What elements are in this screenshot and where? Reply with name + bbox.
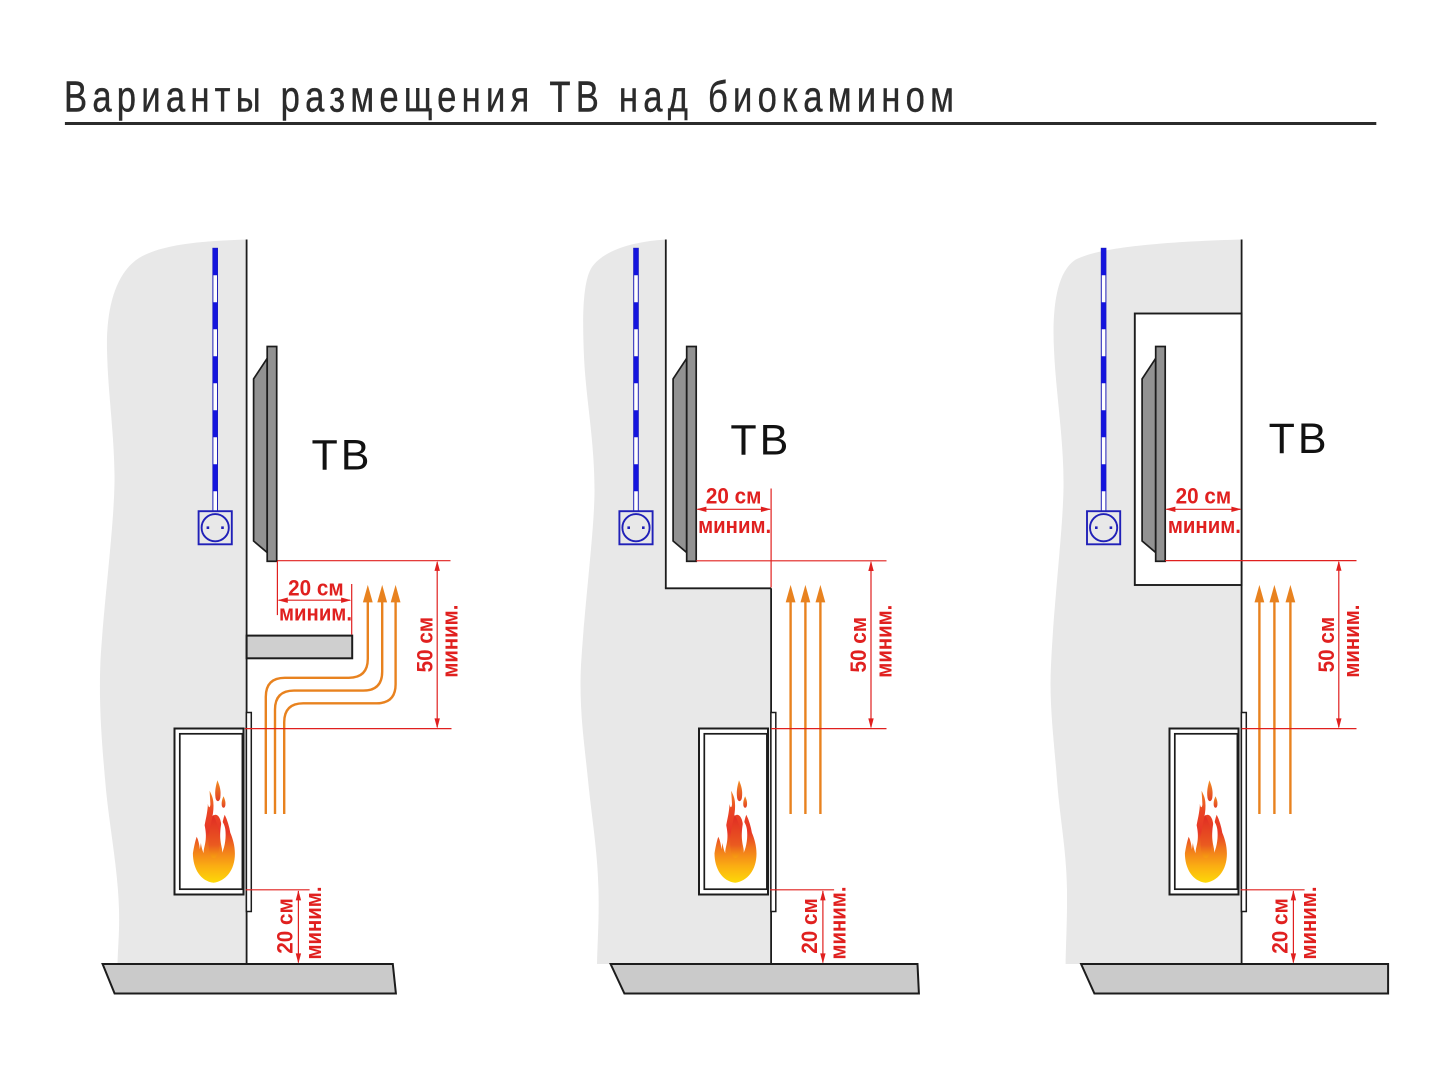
svg-text:20 см: 20 см — [288, 575, 344, 600]
svg-text:ТВ: ТВ — [1269, 415, 1330, 463]
svg-text:миним.: миним. — [825, 887, 850, 960]
svg-text:миним.: миним. — [698, 513, 771, 538]
svg-text:миним.: миним. — [1296, 887, 1321, 960]
svg-text:50 см: 50 см — [846, 617, 871, 673]
svg-text:50 см: 50 см — [1314, 617, 1339, 673]
svg-text:20 см: 20 см — [706, 483, 762, 508]
svg-text:20 см: 20 см — [1176, 483, 1232, 508]
svg-text:миним.: миним. — [438, 605, 463, 678]
svg-text:миним.: миним. — [1339, 605, 1364, 678]
svg-text:50 см: 50 см — [412, 617, 437, 673]
svg-text:миним.: миним. — [871, 605, 896, 678]
svg-text:Варианты размещения ТВ над био: Варианты размещения ТВ над биокамином — [64, 74, 959, 121]
svg-text:миним.: миним. — [301, 887, 326, 960]
svg-text:ТВ: ТВ — [312, 431, 373, 479]
svg-text:20 см: 20 см — [273, 898, 298, 954]
svg-text:миним.: миним. — [1168, 513, 1241, 538]
svg-text:20 см: 20 см — [797, 898, 822, 954]
svg-text:20 см: 20 см — [1268, 898, 1293, 954]
svg-text:ТВ: ТВ — [730, 417, 791, 465]
svg-text:миним.: миним. — [279, 600, 352, 625]
